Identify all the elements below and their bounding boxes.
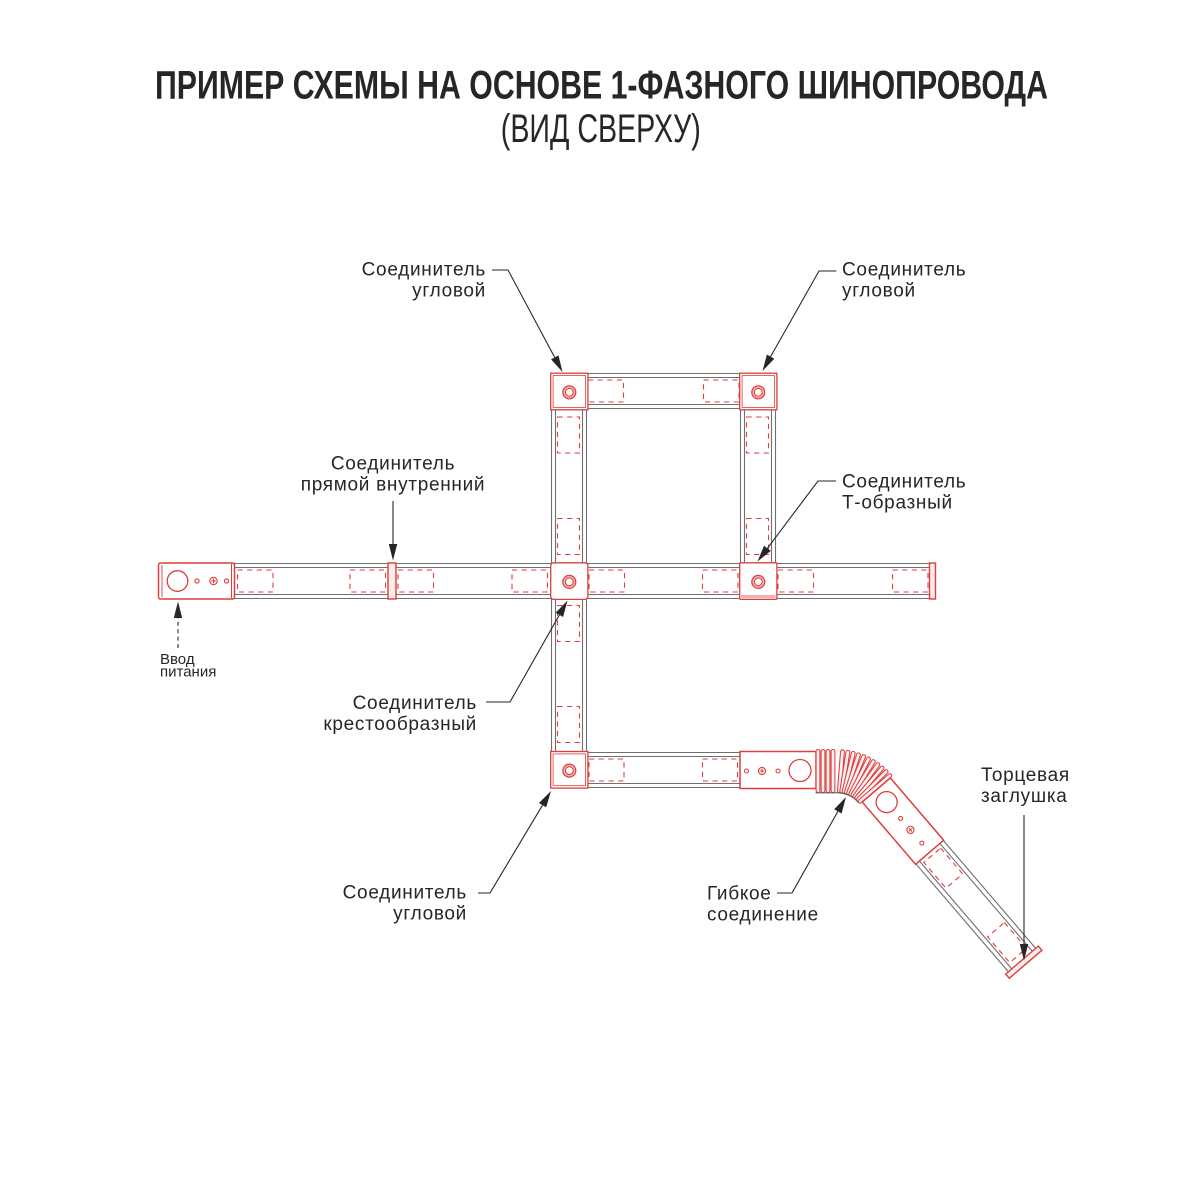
svg-text:угловой: угловой <box>842 280 916 301</box>
svg-text:Соединитель: Соединитель <box>353 693 477 714</box>
svg-text:угловой: угловой <box>412 280 486 301</box>
svg-text:Соединитель: Соединитель <box>331 454 455 475</box>
svg-text:Соединитель: Соединитель <box>842 259 966 280</box>
svg-text:питания: питания <box>160 664 216 681</box>
svg-text:Гибкое: Гибкое <box>707 884 772 905</box>
svg-text:соединение: соединение <box>707 905 819 926</box>
svg-text:(ВИД СВЕРХУ): (ВИД СВЕРХУ) <box>501 107 701 151</box>
svg-text:угловой: угловой <box>393 903 467 924</box>
svg-text:заглушка: заглушка <box>981 786 1068 807</box>
svg-text:Соединитель: Соединитель <box>362 259 486 280</box>
svg-text:крестообразный: крестообразный <box>323 714 477 735</box>
svg-text:Т-образный: Т-образный <box>842 493 953 514</box>
svg-text:Соединитель: Соединитель <box>842 472 966 493</box>
svg-text:Торцевая: Торцевая <box>981 765 1070 786</box>
svg-text:ПРИМЕР СХЕМЫ НА ОСНОВЕ 1-ФАЗНО: ПРИМЕР СХЕМЫ НА ОСНОВЕ 1-ФАЗНОГО ШИНОПРО… <box>155 64 1048 108</box>
svg-text:прямой внутренний: прямой внутренний <box>301 475 486 496</box>
svg-text:Соединитель: Соединитель <box>343 882 467 903</box>
